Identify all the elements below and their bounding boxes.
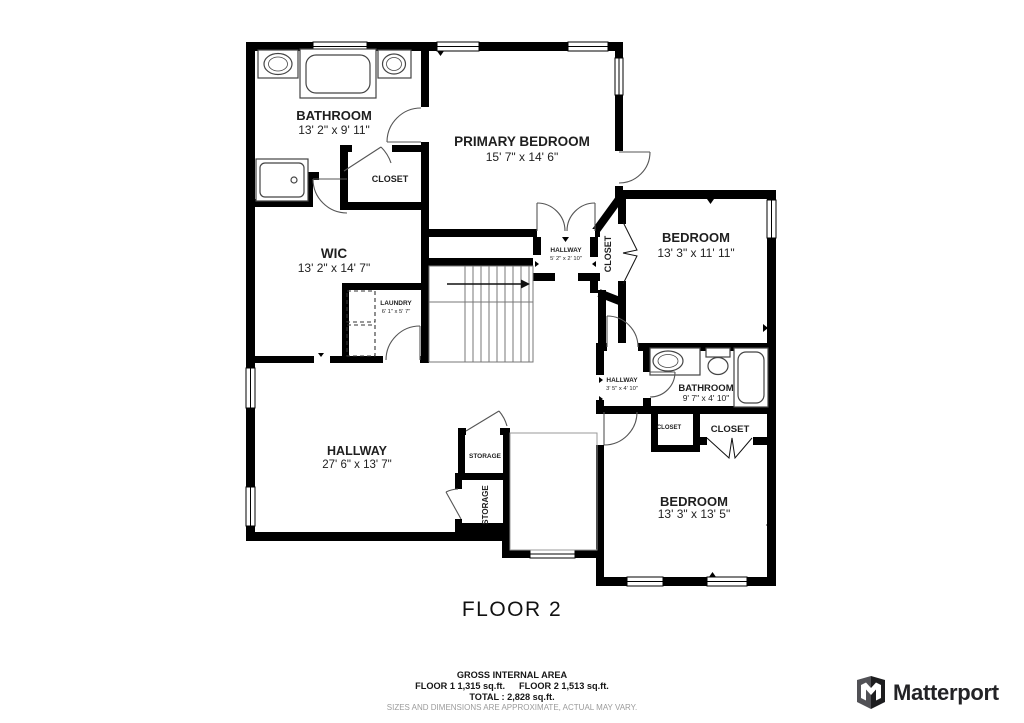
room-label-storage-top: STORAGE (469, 453, 502, 460)
door-primary-entry (619, 152, 650, 183)
staircase (429, 266, 533, 362)
window (437, 42, 479, 51)
room-label-closet-primary: CLOSET (372, 174, 409, 184)
room-dims-bedroom-bottom: 13' 3" x 13' 5" (658, 507, 730, 521)
room-dims-hallway-small: 3' 5" x 4' 10" (606, 386, 638, 392)
room-dims-primary-bedroom: 15' 7" x 14' 6" (486, 150, 558, 164)
room-label-wic: WIC (321, 246, 347, 261)
washer-dryer (347, 291, 375, 356)
sink (650, 348, 700, 375)
window (615, 58, 623, 95)
room-label-bathroom1: BATHROOM (296, 108, 372, 123)
room-label-closet-large: CLOSET (711, 424, 750, 435)
bathtub (300, 49, 376, 98)
window (246, 487, 255, 526)
window (246, 368, 255, 408)
floorplan-page: BATHROOM 13' 2" x 9' 11" CLOSET PRIMARY … (0, 0, 1024, 723)
floor-title: FLOOR 2 (0, 598, 1024, 622)
sink (378, 50, 411, 78)
bathtub (734, 348, 768, 407)
stair-void-outline (510, 433, 597, 550)
room-label-storage-bottom: STORAGE (481, 485, 490, 525)
room-label-hallway-small: HALLWAY (606, 377, 638, 384)
window (767, 200, 776, 238)
floor2-area: FLOOR 2 1,513 sq.ft. (519, 681, 609, 691)
matterport-logo: Matterport (856, 676, 999, 710)
shower (256, 159, 308, 201)
window (568, 42, 608, 51)
double-door-primary (537, 203, 595, 231)
room-dims-bathroom2: 9' 7" x 4' 10" (683, 393, 730, 403)
room-dims-bathroom1: 13' 2" x 9' 11" (298, 123, 370, 137)
room-label-hallway-upper: HALLWAY (550, 247, 582, 254)
room-dims-laundry: 6' 1" x 5' 7" (382, 309, 411, 315)
room-label-laundry: LAUNDRY (380, 300, 412, 307)
room-dims-hallway-upper: 5' 2" x 2' 10" (550, 256, 582, 262)
room-dims-bedroom-right: 13' 3" x 11' 11" (657, 246, 734, 260)
toilet (706, 348, 730, 375)
room-label-hallway-main: HALLWAY (327, 444, 388, 458)
floor1-area: FLOOR 1 1,315 sq.ft. (415, 681, 505, 691)
window (627, 577, 663, 586)
sink (258, 50, 298, 78)
door-laundry (386, 326, 420, 360)
matterport-wordmark: Matterport (893, 680, 999, 706)
room-label-closet-small: CLOSET (657, 425, 682, 431)
room-label-primary-bedroom: PRIMARY BEDROOM (454, 134, 590, 149)
room-label-bedroom-right: BEDROOM (662, 230, 730, 245)
room-dims-wic: 13' 2" x 14' 7" (298, 261, 370, 275)
door-bedroom-bottom (604, 412, 637, 445)
window (707, 577, 747, 586)
door-bathroom1 (387, 108, 421, 142)
window (530, 550, 575, 558)
bifold-door-closet-hall (623, 222, 637, 284)
room-dims-hallway-main: 27' 6" x 13' 7" (322, 459, 391, 471)
door-bathroom2 (650, 372, 675, 397)
room-label-closet-hall: CLOSET (603, 235, 613, 272)
matterport-icon (856, 676, 886, 710)
